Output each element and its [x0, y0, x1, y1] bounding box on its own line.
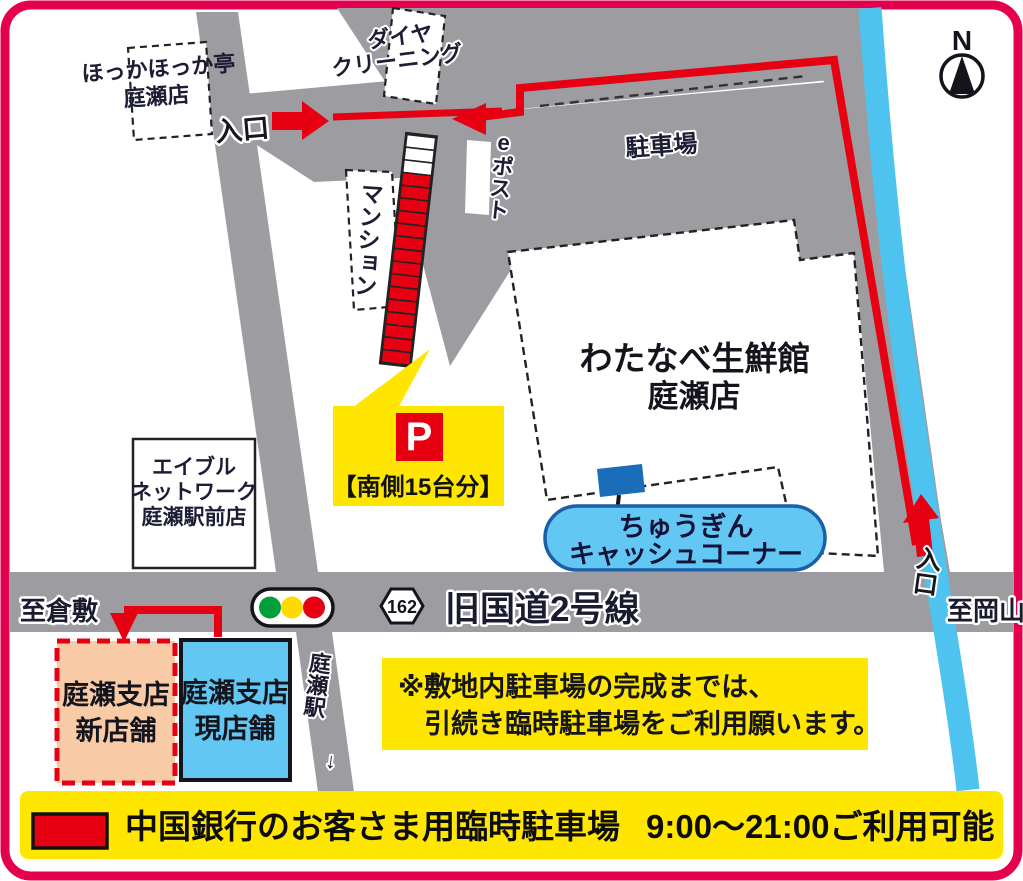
- west-entrance-label: 入口: [214, 113, 270, 148]
- signal-yellow-light: [281, 597, 303, 619]
- to-kurashiki-label: 至倉敷: [20, 596, 99, 626]
- hokka-label-line2: 庭瀬店: [123, 82, 191, 112]
- legend-text-hours: 9:00～21:00ご利用可能: [646, 808, 994, 845]
- able-label-line2: ネットワーク: [131, 481, 257, 504]
- access-map: 162 N ほっかほっか亭 庭瀬店 ダイヤ クリーニング マンション eポスト …: [0, 0, 1023, 881]
- road-name-label: 旧国道2号線: [445, 590, 639, 629]
- supermarket-label-line2: 庭瀬店: [648, 379, 741, 414]
- branch-current-box: [181, 640, 290, 780]
- branch-new-label-line2: 新店舗: [76, 715, 157, 746]
- supermarket-label-line1: わたなべ生鮮館: [580, 340, 811, 377]
- chugin-label-line1: ちゅうぎん: [619, 512, 754, 542]
- signal-red-light: [303, 597, 325, 619]
- chugin-label-line2: キャッシュコーナー: [569, 539, 803, 569]
- atm-marker: [597, 464, 645, 497]
- legend-text-main: 中国銀行のお客さま用臨時駐車場: [125, 808, 620, 845]
- able-label-line1: エイブル: [152, 455, 236, 479]
- branch-current-label-line1: 庭瀬支店: [181, 677, 289, 708]
- able-label-line3: 庭瀬駅前店: [142, 505, 247, 529]
- branch-new-box: [57, 641, 175, 783]
- signal-green-light: [259, 597, 281, 619]
- note-line2: 引続き臨時駐車場をご利用願います。: [424, 708, 880, 739]
- route-162-label: 162: [387, 597, 417, 617]
- branch-current-label-line2: 現店舗: [195, 714, 276, 744]
- parking-lot-label: 駐車場: [625, 130, 699, 163]
- legend-swatch: [33, 814, 107, 848]
- note-line1: ※敷地内駐車場の完成までは、: [398, 671, 775, 702]
- compass-n-label: N: [952, 25, 972, 56]
- p-mark-label: P: [406, 415, 433, 459]
- legend-text: 中国銀行のお客さま用臨時駐車場9:00～21:00ご利用可能: [125, 808, 994, 845]
- p-capacity-label: 【南側15台分】: [333, 473, 504, 501]
- to-okayama-label: 至岡山: [947, 596, 1023, 626]
- branch-new-label-line1: 庭瀬支店: [62, 679, 170, 710]
- parking-cell-red: [381, 349, 411, 365]
